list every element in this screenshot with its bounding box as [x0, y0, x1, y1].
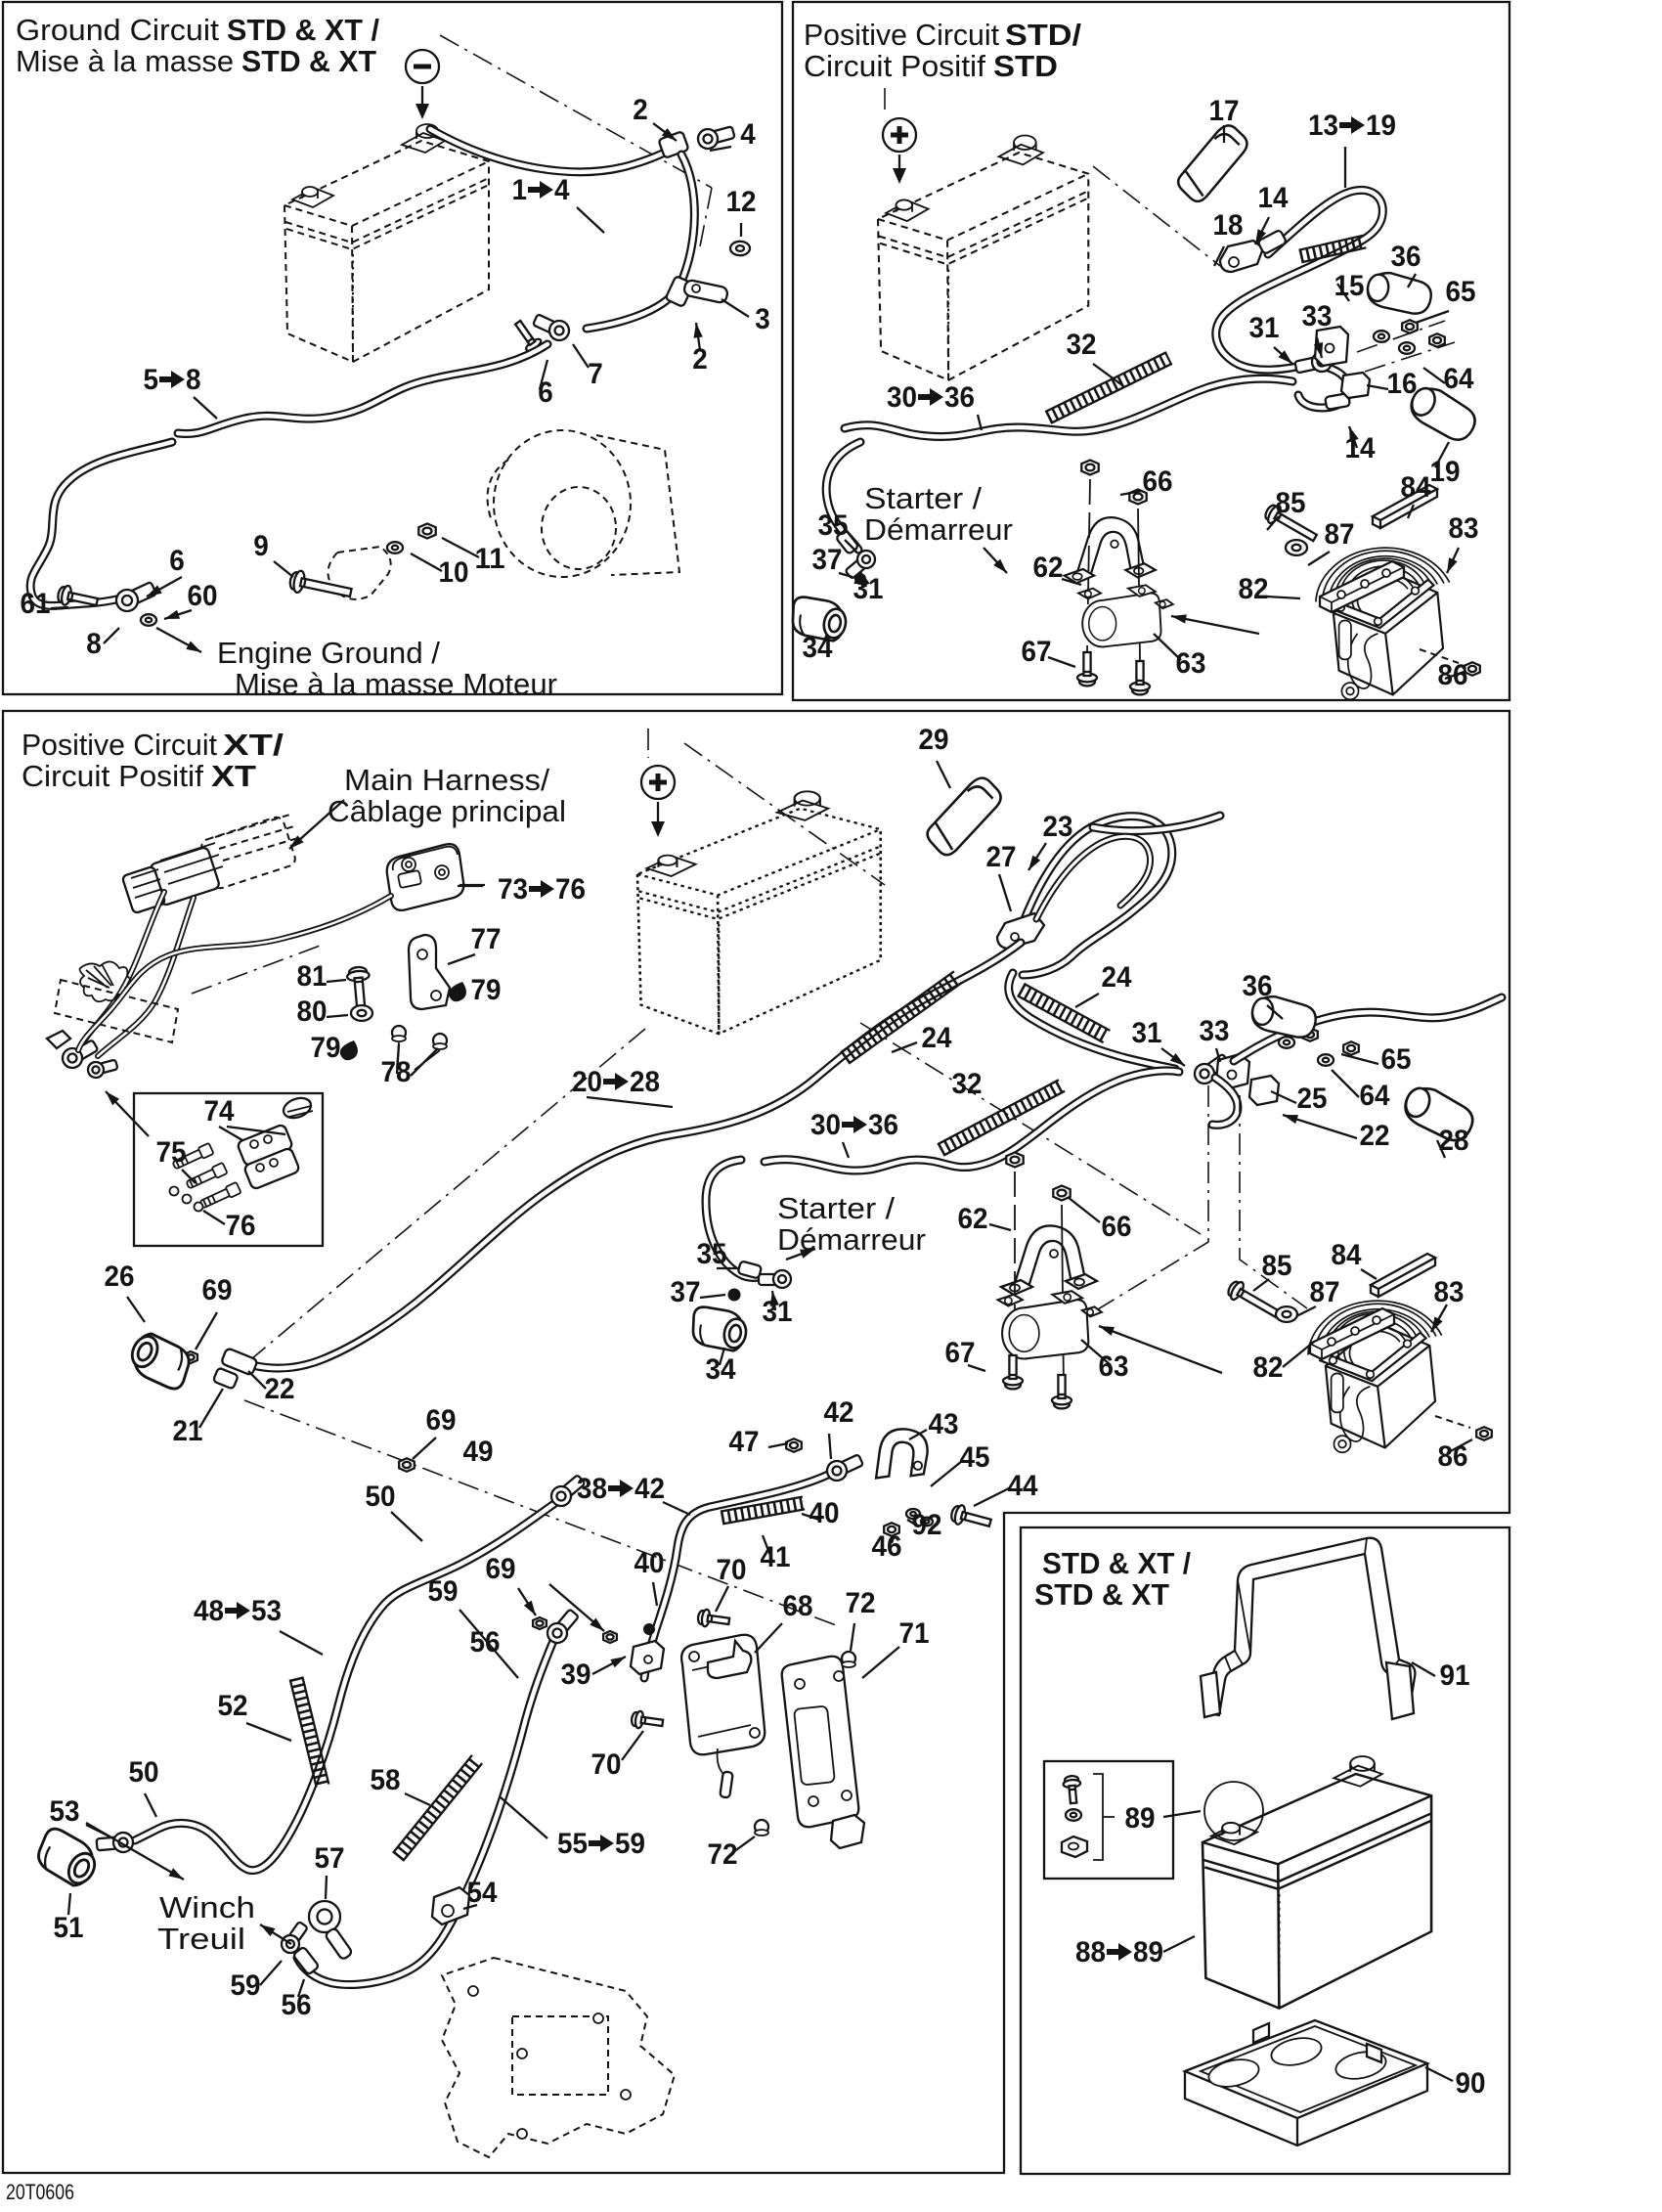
svg-text:85: 85 — [1276, 487, 1306, 519]
svg-text:42: 42 — [634, 1473, 665, 1505]
svg-text:75: 75 — [156, 1136, 187, 1169]
svg-text:86: 86 — [1438, 659, 1468, 691]
svg-text:14: 14 — [1258, 182, 1289, 214]
svg-text:63: 63 — [1099, 1350, 1129, 1383]
svg-text:48: 48 — [194, 1595, 224, 1627]
svg-text:47: 47 — [729, 1426, 760, 1458]
svg-text:Starter /: Starter / — [864, 481, 982, 515]
svg-text:82: 82 — [1253, 1351, 1284, 1384]
svg-text:85: 85 — [1262, 1250, 1292, 1282]
svg-text:19: 19 — [1366, 110, 1396, 142]
svg-text:18: 18 — [1213, 209, 1244, 242]
svg-text:60: 60 — [188, 580, 218, 612]
svg-text:40: 40 — [634, 1547, 665, 1579]
svg-text:69: 69 — [426, 1404, 457, 1437]
svg-text:30: 30 — [887, 381, 917, 414]
svg-text:52: 52 — [218, 1690, 248, 1722]
svg-text:68: 68 — [783, 1590, 813, 1622]
svg-text:92: 92 — [912, 1509, 942, 1541]
svg-text:26: 26 — [105, 1261, 135, 1293]
svg-text:69: 69 — [486, 1553, 516, 1585]
svg-text:36: 36 — [944, 381, 975, 414]
svg-text:16: 16 — [1387, 368, 1418, 400]
svg-text:76: 76 — [555, 873, 586, 906]
svg-text:89: 89 — [1125, 1802, 1156, 1835]
svg-text:23: 23 — [1043, 811, 1073, 843]
svg-text:6: 6 — [538, 376, 553, 409]
svg-text:59: 59 — [615, 1828, 645, 1860]
svg-text:STD & XT: STD & XT — [1034, 1577, 1169, 1612]
svg-text:14: 14 — [1345, 432, 1376, 465]
svg-text:40: 40 — [809, 1497, 840, 1529]
svg-text:8: 8 — [186, 364, 201, 396]
svg-text:76: 76 — [226, 1210, 256, 1242]
svg-text:31: 31 — [853, 573, 884, 605]
svg-text:36: 36 — [1243, 970, 1273, 1002]
svg-text:86: 86 — [1438, 1440, 1468, 1473]
svg-text:13: 13 — [1308, 110, 1338, 142]
svg-text:33: 33 — [1302, 300, 1333, 332]
svg-text:Mise à la masse: Mise à la masse — [16, 44, 234, 78]
svg-text:STD & XT: STD & XT — [241, 44, 376, 78]
svg-text:54: 54 — [467, 1877, 498, 1909]
svg-text:Circuit Positif: Circuit Positif — [804, 49, 985, 83]
svg-text:30: 30 — [810, 1109, 841, 1141]
svg-text:10: 10 — [439, 556, 469, 589]
svg-text:STD & XT /: STD & XT / — [227, 13, 379, 47]
svg-text:79: 79 — [311, 1032, 341, 1064]
svg-text:51: 51 — [54, 1912, 84, 1944]
svg-text:61: 61 — [21, 588, 51, 620]
svg-text:Treuil: Treuil — [157, 1922, 245, 1956]
svg-text:20T0606: 20T0606 — [6, 2180, 74, 2204]
svg-text:37: 37 — [671, 1276, 701, 1308]
svg-text:72: 72 — [846, 1587, 876, 1619]
svg-text:77: 77 — [471, 923, 502, 955]
svg-text:66: 66 — [1143, 465, 1173, 498]
svg-text:58: 58 — [371, 1764, 401, 1796]
svg-text:24: 24 — [1102, 961, 1132, 994]
svg-text:STD & XT /: STD & XT / — [1042, 1546, 1191, 1580]
svg-text:8: 8 — [86, 628, 102, 660]
svg-text:80: 80 — [297, 995, 328, 1028]
svg-text:43: 43 — [929, 1408, 959, 1440]
svg-text:88: 88 — [1075, 1936, 1106, 1969]
svg-text:4: 4 — [554, 174, 570, 206]
svg-text:87: 87 — [1310, 1276, 1340, 1308]
svg-text:56: 56 — [470, 1626, 501, 1659]
svg-text:Engine Ground /: Engine Ground / — [217, 636, 440, 670]
svg-text:39: 39 — [561, 1659, 591, 1691]
svg-text:45: 45 — [960, 1441, 990, 1474]
svg-text:70: 70 — [591, 1748, 622, 1781]
svg-text:81: 81 — [297, 960, 328, 993]
svg-text:83: 83 — [1449, 512, 1479, 545]
svg-text:55: 55 — [557, 1828, 588, 1860]
svg-text:66: 66 — [1102, 1211, 1132, 1243]
svg-text:6: 6 — [169, 545, 185, 577]
svg-text:29: 29 — [919, 724, 949, 756]
svg-text:STD/: STD/ — [1005, 18, 1081, 52]
svg-text:31: 31 — [1132, 1017, 1162, 1049]
svg-text:44: 44 — [1008, 1470, 1038, 1502]
svg-text:9: 9 — [253, 530, 269, 562]
svg-text:72: 72 — [708, 1838, 738, 1871]
svg-text:41: 41 — [761, 1541, 791, 1573]
svg-text:Positive Circuit: Positive Circuit — [22, 728, 217, 762]
svg-text:1: 1 — [512, 174, 528, 206]
svg-text:Ground Circuit: Ground Circuit — [16, 13, 219, 47]
svg-text:57: 57 — [315, 1842, 345, 1875]
svg-text:35: 35 — [818, 509, 849, 542]
svg-text:31: 31 — [1249, 312, 1280, 344]
svg-text:2: 2 — [692, 343, 708, 376]
svg-text:15: 15 — [1334, 270, 1365, 302]
svg-text:73: 73 — [498, 873, 528, 906]
svg-text:32: 32 — [1067, 329, 1097, 361]
svg-text:67: 67 — [945, 1337, 976, 1369]
svg-text:Mise à la masse Moteur: Mise à la masse Moteur — [235, 667, 557, 701]
svg-text:91: 91 — [1440, 1659, 1470, 1692]
svg-text:90: 90 — [1456, 2067, 1486, 2100]
svg-text:42: 42 — [824, 1396, 854, 1429]
svg-text:20: 20 — [572, 1066, 602, 1098]
svg-text:Starter /: Starter / — [777, 1191, 895, 1225]
svg-text:32: 32 — [952, 1068, 983, 1100]
svg-text:11: 11 — [475, 543, 505, 575]
svg-text:69: 69 — [202, 1274, 233, 1306]
svg-text:17: 17 — [1209, 95, 1240, 127]
svg-text:82: 82 — [1239, 573, 1269, 605]
svg-text:Positive Circuit: Positive Circuit — [804, 18, 999, 52]
svg-text:34: 34 — [706, 1353, 736, 1386]
svg-text:46: 46 — [872, 1530, 902, 1563]
svg-text:49: 49 — [463, 1436, 494, 1468]
svg-text:56: 56 — [282, 1989, 312, 2021]
svg-text:50: 50 — [129, 1756, 159, 1789]
svg-text:36: 36 — [868, 1109, 898, 1141]
svg-text:83: 83 — [1434, 1276, 1465, 1308]
svg-text:XT: XT — [211, 759, 256, 793]
svg-text:25: 25 — [1297, 1083, 1328, 1115]
svg-text:35: 35 — [697, 1238, 727, 1270]
svg-text:Démarreur: Démarreur — [864, 512, 1013, 547]
svg-text:22: 22 — [265, 1373, 295, 1405]
svg-text:65: 65 — [1381, 1043, 1412, 1076]
svg-text:84: 84 — [1401, 471, 1431, 504]
svg-text:21: 21 — [173, 1415, 203, 1447]
svg-text:4: 4 — [740, 118, 756, 151]
svg-text:62: 62 — [1033, 552, 1064, 584]
svg-text:27: 27 — [986, 841, 1017, 873]
svg-text:28: 28 — [1439, 1125, 1469, 1157]
svg-text:Circuit Positif: Circuit Positif — [22, 759, 203, 793]
svg-text:XT/: XT/ — [223, 728, 284, 762]
svg-text:64: 64 — [1444, 363, 1474, 395]
svg-text:Winch: Winch — [159, 1890, 255, 1924]
svg-text:3: 3 — [755, 303, 770, 335]
svg-text:STD: STD — [993, 49, 1058, 83]
svg-text:5: 5 — [144, 364, 159, 396]
svg-text:53: 53 — [50, 1795, 80, 1828]
svg-text:33: 33 — [1200, 1015, 1230, 1047]
svg-text:71: 71 — [899, 1617, 930, 1650]
svg-text:7: 7 — [588, 358, 603, 390]
svg-text:28: 28 — [630, 1066, 660, 1098]
svg-text:84: 84 — [1332, 1239, 1362, 1271]
svg-text:70: 70 — [717, 1554, 747, 1586]
svg-text:Câblage principal: Câblage principal — [328, 794, 566, 828]
svg-text:24: 24 — [922, 1022, 952, 1054]
svg-text:64: 64 — [1360, 1080, 1390, 1112]
svg-text:31: 31 — [763, 1296, 793, 1328]
svg-text:53: 53 — [251, 1595, 282, 1627]
svg-text:63: 63 — [1176, 647, 1206, 680]
svg-text:65: 65 — [1446, 276, 1476, 308]
svg-text:22: 22 — [1360, 1120, 1390, 1152]
svg-text:50: 50 — [366, 1481, 396, 1513]
svg-text:87: 87 — [1325, 518, 1355, 551]
svg-text:12: 12 — [726, 186, 757, 218]
svg-text:38: 38 — [577, 1473, 607, 1505]
svg-text:62: 62 — [958, 1203, 988, 1235]
svg-text:59: 59 — [428, 1575, 459, 1608]
svg-text:89: 89 — [1133, 1936, 1163, 1969]
svg-text:37: 37 — [812, 544, 843, 576]
svg-text:19: 19 — [1430, 456, 1461, 488]
svg-text:67: 67 — [1022, 636, 1052, 668]
svg-text:74: 74 — [204, 1095, 235, 1128]
svg-text:79: 79 — [471, 974, 502, 1006]
svg-text:34: 34 — [803, 632, 833, 664]
svg-text:Démarreur: Démarreur — [777, 1222, 926, 1257]
svg-text:2: 2 — [633, 94, 648, 126]
svg-text:78: 78 — [381, 1056, 412, 1088]
svg-text:Main Harness/: Main Harness/ — [344, 763, 549, 797]
svg-text:59: 59 — [231, 1969, 261, 2002]
svg-text:36: 36 — [1391, 241, 1421, 273]
